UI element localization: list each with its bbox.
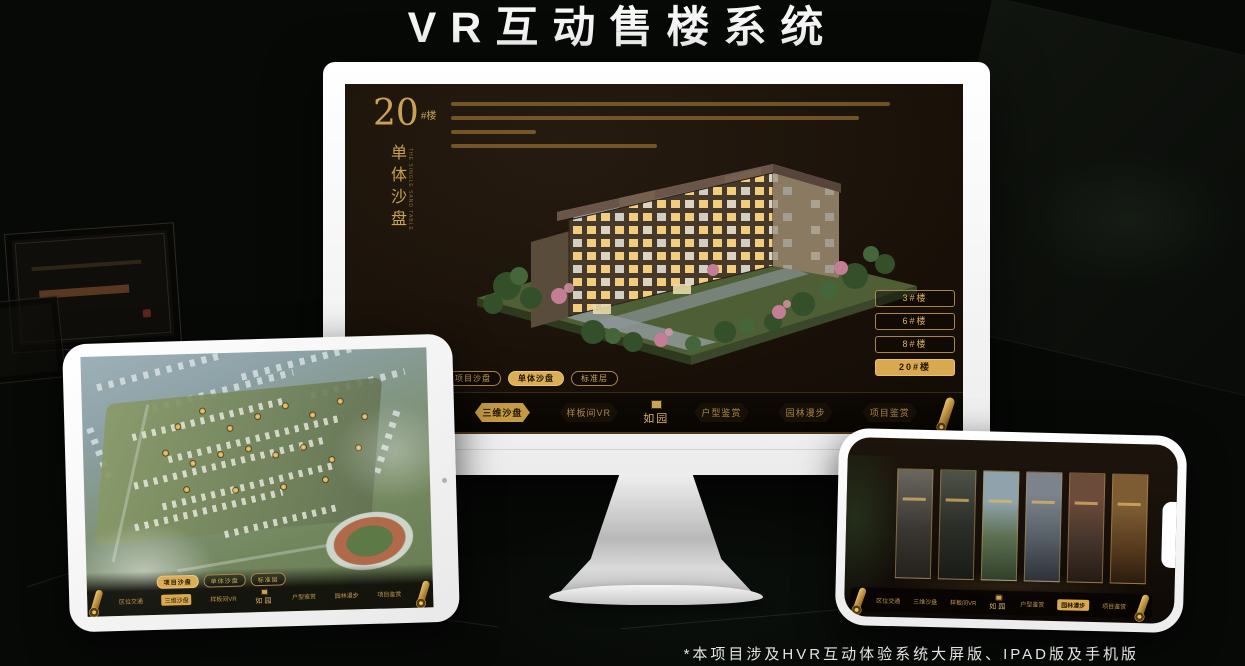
tablet-screen: 项目沙盘 单体沙盘 标准层 区位交通 三维沙盘 样板间VR 如园 户型鉴赏 园林… (80, 347, 433, 617)
phone-notch (1161, 501, 1177, 567)
brand-logo-text: 如园 (255, 595, 273, 605)
monitor-stand-base (549, 585, 763, 605)
nav-item-3d-sandbox[interactable]: 三维沙盘 (161, 593, 191, 605)
seal-icon (261, 588, 268, 594)
nav-item-3d-sandbox[interactable]: 三维沙盘 (913, 596, 937, 606)
gallery-card-building[interactable] (1023, 472, 1062, 582)
seal-icon (651, 400, 662, 409)
nav-item-project-gallery[interactable]: 项目鉴赏 (1102, 601, 1126, 611)
tablet-camera (442, 478, 447, 483)
brand-logo-text: 如园 (643, 410, 669, 426)
city-block (241, 347, 357, 380)
brand-logo: 如园 (643, 400, 669, 426)
scroll-icon[interactable] (90, 589, 103, 614)
scroll-icon[interactable] (417, 580, 430, 605)
gallery-card-interior[interactable] (937, 470, 976, 580)
tablet: 项目沙盘 单体沙盘 标准层 区位交通 三维沙盘 样板间VR 如园 户型鉴赏 园林… (62, 334, 460, 633)
nav-item-project-gallery[interactable]: 项目鉴赏 (858, 403, 922, 422)
tab-standard-floor[interactable]: 标准层 (571, 371, 618, 386)
gallery-card-garden[interactable] (980, 471, 1019, 581)
building-number-unit: #楼 (421, 111, 437, 122)
footnote: *本项目涉及HVR互动体验系统大屏版、IPAD版及手机版 (684, 643, 1139, 664)
background-river-patch (1020, 150, 1240, 290)
building-number: 20 (373, 93, 419, 134)
gallery-card-lobby[interactable] (1109, 474, 1148, 584)
nav-item-project-gallery[interactable]: 项目鉴赏 (377, 589, 401, 599)
poster: VR互动售楼系统 20#楼 单体沙盘 THE SINGLE SAND TABLE (0, 0, 1245, 666)
phone-screen: 区位交通 三维沙盘 样板间VR 如园 户型鉴赏 园林漫步 项目鉴赏 (844, 437, 1178, 624)
gallery-card-courtyard[interactable] (894, 469, 933, 579)
nav-item-garden-walk[interactable]: 园林漫步 (1057, 599, 1089, 611)
scene-gallery (894, 469, 1148, 584)
floor-selector: 3#楼 6#楼 8#楼 20#楼 (875, 290, 955, 376)
building-3d-render[interactable] (473, 146, 921, 394)
floor-button-3[interactable]: 3#楼 (875, 290, 955, 307)
seal-icon (995, 594, 1002, 600)
building-badges (80, 347, 426, 357)
page-title: VR互动售楼系统 (0, 0, 1245, 56)
interior-ceiling (907, 438, 1119, 472)
tablet-navigation: 项目沙盘 单体沙盘 标准层 区位交通 三维沙盘 样板间VR 如园 户型鉴赏 园林… (86, 563, 433, 617)
nav-item-garden-walk[interactable]: 园林漫步 (335, 590, 359, 600)
nav-items-row: 区位交通 三维沙盘 样板间VR 如园 户型鉴赏 园林漫步 项目鉴赏 (93, 580, 428, 613)
background-award-plaque (0, 295, 66, 386)
nav-item-showroom-vr[interactable]: 样板间VR (950, 597, 977, 607)
section-subtitle-en: THE SINGLE SAND TABLE (407, 148, 413, 231)
view-tabs: 项目沙盘 单体沙盘 标准层 (445, 371, 618, 386)
section-title-vertical: 单体沙盘 (385, 144, 409, 232)
nav-item-location[interactable]: 区位交通 (876, 595, 900, 605)
scroll-icon[interactable] (852, 587, 867, 612)
floor-button-6[interactable]: 6#楼 (875, 313, 955, 330)
nav-item-unit-plans[interactable]: 户型鉴赏 (292, 591, 316, 601)
scroll-icon[interactable] (1135, 594, 1150, 619)
scroll-icon[interactable] (937, 396, 955, 429)
nav-item-3d-sandbox[interactable]: 三维沙盘 (470, 403, 534, 422)
gallery-card-autumn[interactable] (1066, 473, 1105, 583)
tab-project-sandbox[interactable]: 项目沙盘 (445, 371, 501, 386)
city-block (96, 351, 225, 391)
nav-item-unit-plans[interactable]: 户型鉴赏 (689, 403, 753, 422)
nav-item-unit-plans[interactable]: 户型鉴赏 (1020, 599, 1044, 609)
nav-item-showroom-vr[interactable]: 样板间VR (555, 403, 624, 422)
nav-item-location[interactable]: 区位交通 (119, 596, 143, 606)
brand-logo: 如园 (989, 594, 1007, 611)
floor-button-20[interactable]: 20#楼 (875, 359, 955, 376)
nav-item-garden-walk[interactable]: 园林漫步 (774, 403, 838, 422)
brand-logo-text: 如园 (989, 601, 1007, 611)
building-heading: 20#楼 (373, 94, 436, 134)
nav-item-showroom-vr[interactable]: 样板间VR (210, 593, 237, 603)
smartphone: 区位交通 三维沙盘 样板间VR 如园 户型鉴赏 园林漫步 项目鉴赏 (835, 428, 1188, 633)
floor-button-8[interactable]: 8#楼 (875, 336, 955, 353)
tab-single-sandbox[interactable]: 单体沙盘 (508, 371, 564, 386)
brand-logo: 如园 (255, 588, 273, 605)
